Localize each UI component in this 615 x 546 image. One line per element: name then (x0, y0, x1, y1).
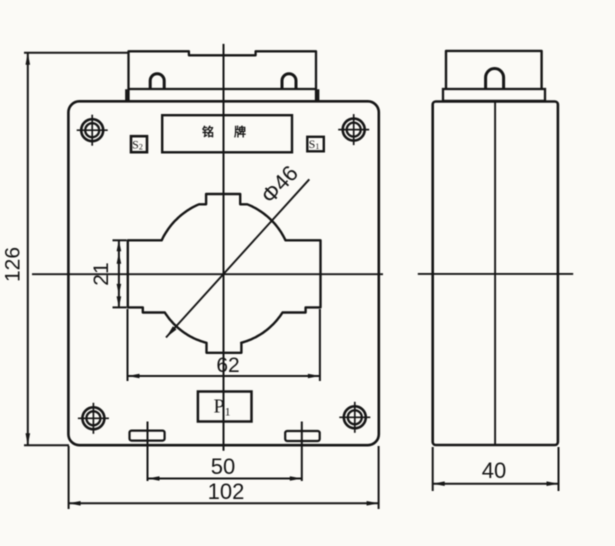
svg-text:102: 102 (208, 479, 245, 504)
svg-text:126: 126 (2, 247, 25, 282)
svg-text:40: 40 (482, 458, 506, 483)
svg-text:62: 62 (216, 354, 239, 377)
svg-text:50: 50 (211, 454, 235, 479)
svg-text:牌: 牌 (234, 124, 246, 139)
svg-text:铭: 铭 (202, 124, 214, 139)
svg-text:21: 21 (90, 262, 113, 285)
